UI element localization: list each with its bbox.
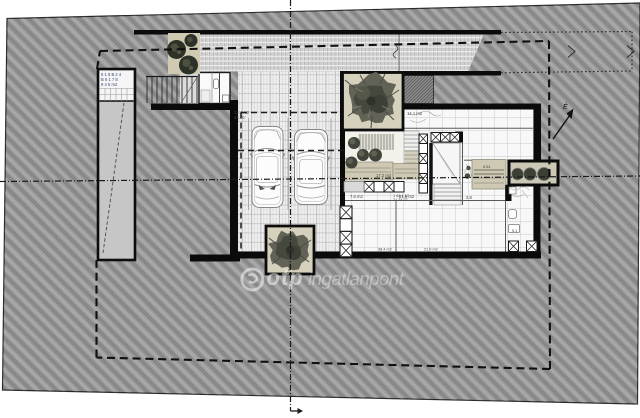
svg-text:21 34 37: 21 34 37: [393, 198, 408, 202]
svg-text:2.8: 2.8: [466, 195, 472, 200]
svg-text:otp: otp: [267, 265, 304, 290]
svg-text:38.4 m2: 38.4 m2: [378, 248, 392, 252]
svg-text:21.0 m2: 21.0 m2: [424, 248, 438, 252]
svg-text:5.1: 5.1: [512, 229, 517, 233]
svg-text:14.1 m2: 14.1 m2: [407, 111, 423, 116]
svg-text:9 4 5 m2: 9 4 5 m2: [101, 82, 118, 87]
svg-text:3.2: 3.2: [345, 157, 350, 161]
svg-text:17.2 m2: 17.2 m2: [376, 173, 392, 178]
svg-text:ingatlanpont: ingatlanpont: [308, 268, 405, 289]
svg-text:44.70: 44.70: [234, 115, 245, 120]
svg-text:6.54: 6.54: [483, 165, 490, 169]
svg-text:7.6 m2: 7.6 m2: [350, 194, 363, 199]
svg-text:É: É: [563, 102, 568, 111]
